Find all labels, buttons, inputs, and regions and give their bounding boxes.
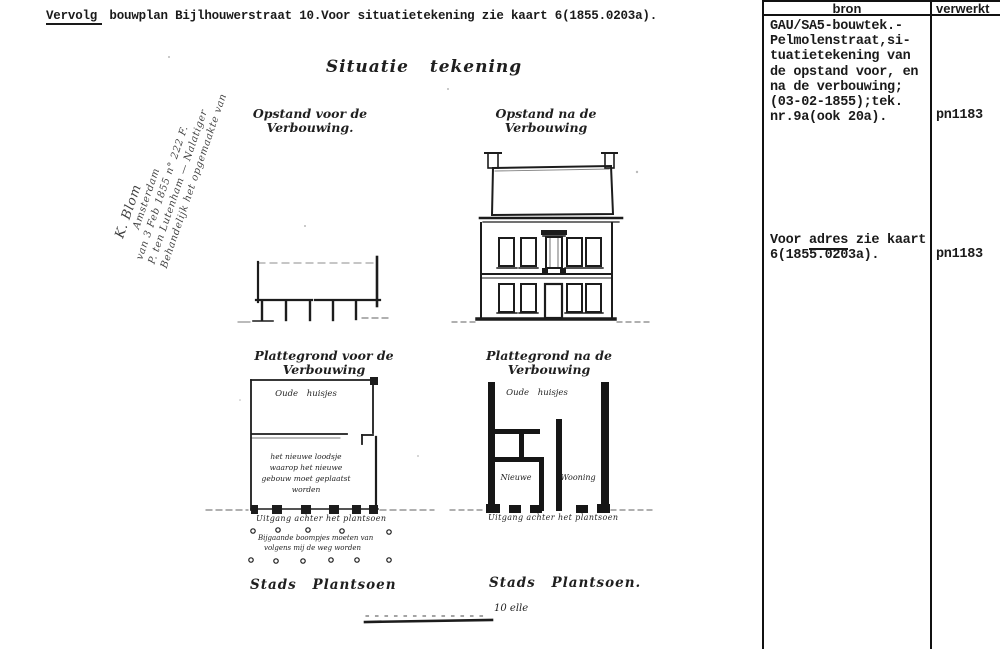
- page-title-underlined: Vervolg: [46, 9, 102, 25]
- plan-before-exit-label: Uitgang achter het plantsoen: [256, 514, 386, 523]
- table-row-1-verwerkt: pn1183: [936, 108, 983, 123]
- note-line: het nieuwe loodsje: [262, 451, 351, 462]
- plan-before-room-label: Oude huisjes: [275, 389, 337, 399]
- table-column-divider: [930, 0, 932, 649]
- elevation-before-drawing: [238, 257, 392, 322]
- label-line: Verbouwing.: [253, 121, 367, 135]
- plan-before-note: het nieuwe loodsje waarop het nieuwe geb…: [262, 451, 351, 495]
- label-line: Verbouwing: [254, 363, 393, 377]
- scale-label: 10 elle: [494, 603, 528, 614]
- page-title: Vervolg bouwplan Bijlhouwerstraat 10.Voo…: [46, 9, 657, 23]
- note-line: volgens mij de weg worden: [258, 543, 373, 553]
- bron-line: GAU/SA5-bouwtek.-: [770, 19, 918, 34]
- note-line: gebouw moet geplaatst: [262, 473, 351, 484]
- bron-line: 6(1855.0203a).: [770, 248, 926, 263]
- trees-note: Bijgaande boompjes moeten van volgens mi…: [258, 533, 373, 553]
- plan-after-room-right-label: Wooning: [560, 473, 595, 482]
- bron-line: na de verbouwing;: [770, 80, 918, 95]
- label-line: Plattegrond na de: [486, 349, 612, 363]
- scale-bar: [365, 616, 492, 622]
- plan-after-label: Plattegrond na de Verbouwing: [486, 349, 612, 377]
- plan-after-room-label: Oude huisjes: [506, 388, 568, 398]
- bron-line: nr.9a(ook 20a).: [770, 110, 918, 125]
- bron-line: Pelmolenstraat,si-: [770, 34, 918, 49]
- plan-after-room-left-label: Nieuwe: [500, 473, 531, 482]
- table-row-1-bron: GAU/SA5-bouwtek.- Pelmolenstraat,si- tua…: [770, 19, 918, 125]
- bron-line: (03-02-1855);tek.: [770, 95, 918, 110]
- table-row-2-verwerkt: pn1183: [936, 247, 983, 262]
- plan-after-exit-label: Uitgang achter het plantsoen: [488, 513, 618, 522]
- architectural-drawing: [0, 0, 760, 649]
- label-line: Plattegrond voor de: [254, 349, 393, 363]
- column-header-bron: bron: [764, 1, 930, 16]
- elevation-after-label: Opstand na de Verbouwing: [496, 107, 597, 135]
- scanned-archive-card: Vervolg bouwplan Bijlhouwerstraat 10.Voo…: [0, 0, 1000, 649]
- label-line: Verbouwing: [496, 121, 597, 135]
- note-line: waarop het nieuwe: [262, 462, 351, 473]
- plan-after-drawing: [450, 382, 655, 513]
- table-border-left: [762, 0, 764, 649]
- note-line: worden: [262, 484, 351, 495]
- bron-line: tuatietekening van: [770, 49, 918, 64]
- elevation-before-label: Opstand voor de Verbouwing.: [253, 107, 367, 135]
- plan-before-label: Plattegrond voor de Verbouwing: [254, 349, 393, 377]
- bron-line: Voor adres zie kaart: [770, 233, 926, 248]
- table-row-2-bron: Voor adres zie kaart 6(1855.0203a).: [770, 233, 926, 263]
- elevation-after-drawing: [452, 153, 652, 322]
- label-line: Opstand na de: [496, 107, 597, 121]
- page-title-rest: bouwplan Bijlhouwerstraat 10.Voor situat…: [102, 9, 657, 23]
- drawing-title: Situatie tekening: [326, 57, 522, 77]
- label-line: Verbouwing: [486, 363, 612, 377]
- bron-line: de opstand voor, en: [770, 65, 918, 80]
- plantsoen-label-left: Stads Plantsoen: [250, 577, 397, 593]
- note-line: Bijgaande boompjes moeten van: [258, 533, 373, 543]
- label-line: Opstand voor de: [253, 107, 367, 121]
- plantsoen-label-right: Stads Plantsoen.: [489, 575, 641, 591]
- column-header-verwerkt: verwerkt: [936, 1, 989, 16]
